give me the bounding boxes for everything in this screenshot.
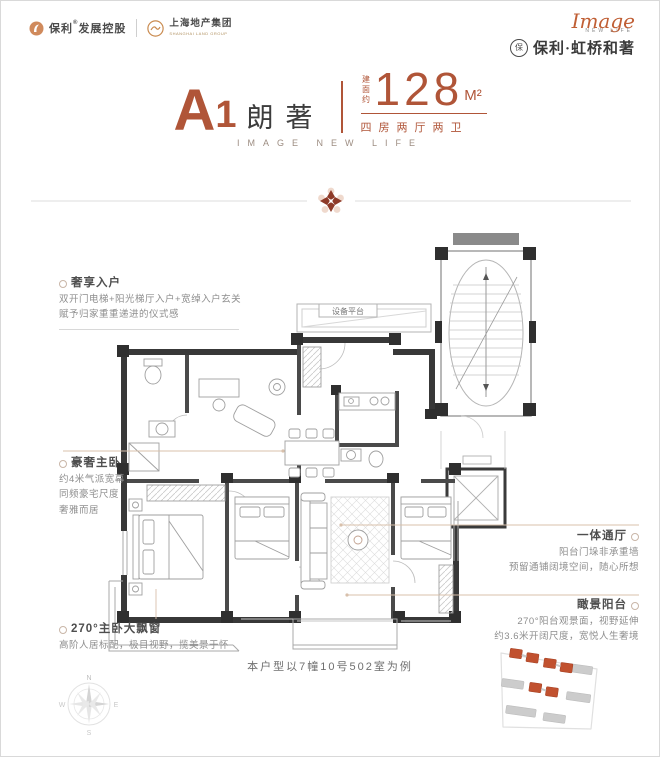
annotation-title: 一体通厅 [577, 530, 627, 544]
flyer-page: 保利®发展控股 上海地产集团 SHANGHAI LAND GROUP Image… [0, 0, 660, 757]
annotation-rule [59, 329, 239, 330]
annotation-text: 阳台门垛非承重墙 [509, 546, 639, 560]
bathroom1-fixtures [129, 359, 175, 471]
annotation-bullet-icon [631, 533, 639, 541]
dining-set [285, 429, 339, 477]
annotation-text: 预留通铺阔境空间，随心所想 [509, 561, 639, 575]
annotation-text: 约3.6米开阔尺度，宽悦人生奢境 [494, 630, 639, 644]
bathroom2-fixtures [341, 449, 383, 467]
equipment-platform-label: 设备平台 [332, 306, 364, 316]
annotation-bullet-icon [59, 626, 67, 634]
annotation-text: 双开门电梯+阳光梯厅入户+宽绰入户玄关 [59, 293, 241, 307]
example-unit-note: 本户型以7幢10号502室为例 [1, 658, 659, 674]
annotation-text: 270°阳台观景面，视野延伸 [494, 615, 639, 629]
kitchen-counter [339, 393, 395, 410]
equipment-platform: 设备平台 [297, 304, 431, 332]
compass-e-label: E [114, 702, 119, 709]
annotation-view-balcony: 瞰景阳台 270°阳台观景面，视野延伸 约3.6米开阔尺度，宽悦人生奢境 [494, 599, 639, 644]
annotation-text: 约4米气派宽幕 [59, 473, 125, 487]
flower-emblem-icon [318, 188, 344, 213]
annotation-title: 豪奢主卧 [71, 457, 121, 471]
annotation-text: 同频豪宅尺度 [59, 488, 125, 502]
annotation-bay-window: 270°主卧大飘窗 高阶人居标配，极目视野，揽美景于怀 [59, 623, 229, 652]
annotation-luxury-entry: 奢享入户 双开门电梯+阳光梯厅入户+宽绰入户玄关 赋予归家重重递进的仪式感 [59, 277, 241, 330]
apartment-walls [117, 333, 461, 623]
annotation-bullet-icon [59, 460, 67, 468]
living-room-rug [331, 497, 389, 583]
stair-core [435, 233, 536, 438]
annotation-master-bedroom: 豪奢主卧 约4米气派宽幕 同频豪宅尺度 奢雅而居 [59, 457, 125, 517]
compass-w-label: W [59, 702, 66, 709]
compass-rose: N E S W [59, 675, 119, 737]
flower-divider [31, 188, 631, 213]
annotation-title: 270°主卧大飘窗 [71, 623, 161, 637]
annotation-title: 奢享入户 [71, 277, 121, 291]
annotation-bullet-icon [631, 602, 639, 610]
annotation-open-hall: 一体通厅 阳台门垛非承重墙 预留通铺阔境空间，随心所想 [509, 530, 639, 575]
annotation-text: 高阶人居标配，极目视野，揽美景于怀 [59, 639, 229, 653]
study-furniture [199, 379, 285, 438]
compass-n-label: N [86, 675, 91, 682]
bedroom2-bed [235, 497, 289, 559]
compass-s-label: S [87, 730, 92, 737]
bedroom3-bed [401, 497, 453, 613]
sofa [301, 493, 327, 589]
annotation-title: 瞰景阳台 [577, 599, 627, 613]
master-bed [129, 485, 225, 595]
annotation-bullet-icon [59, 280, 67, 288]
entry-cabinet [303, 347, 321, 387]
annotation-text: 赋予归家重重递进的仪式感 [59, 308, 241, 322]
annotation-text: 奢雅而居 [59, 504, 125, 518]
